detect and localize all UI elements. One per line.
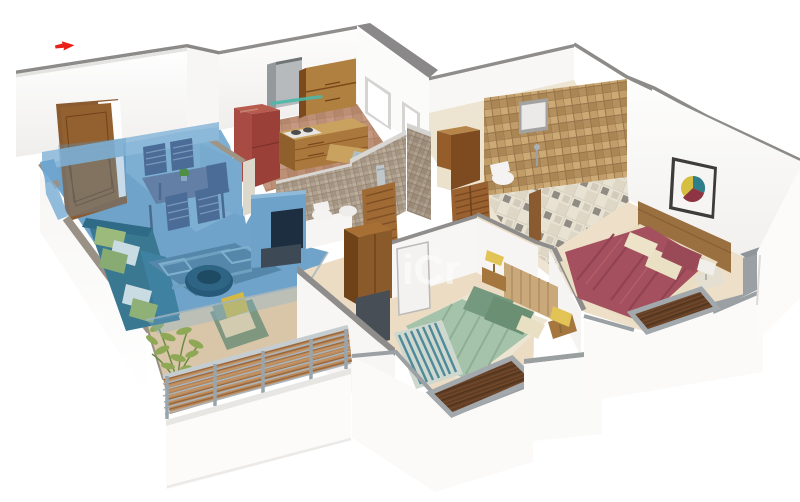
svg-text:iCr: iCr — [402, 246, 460, 293]
